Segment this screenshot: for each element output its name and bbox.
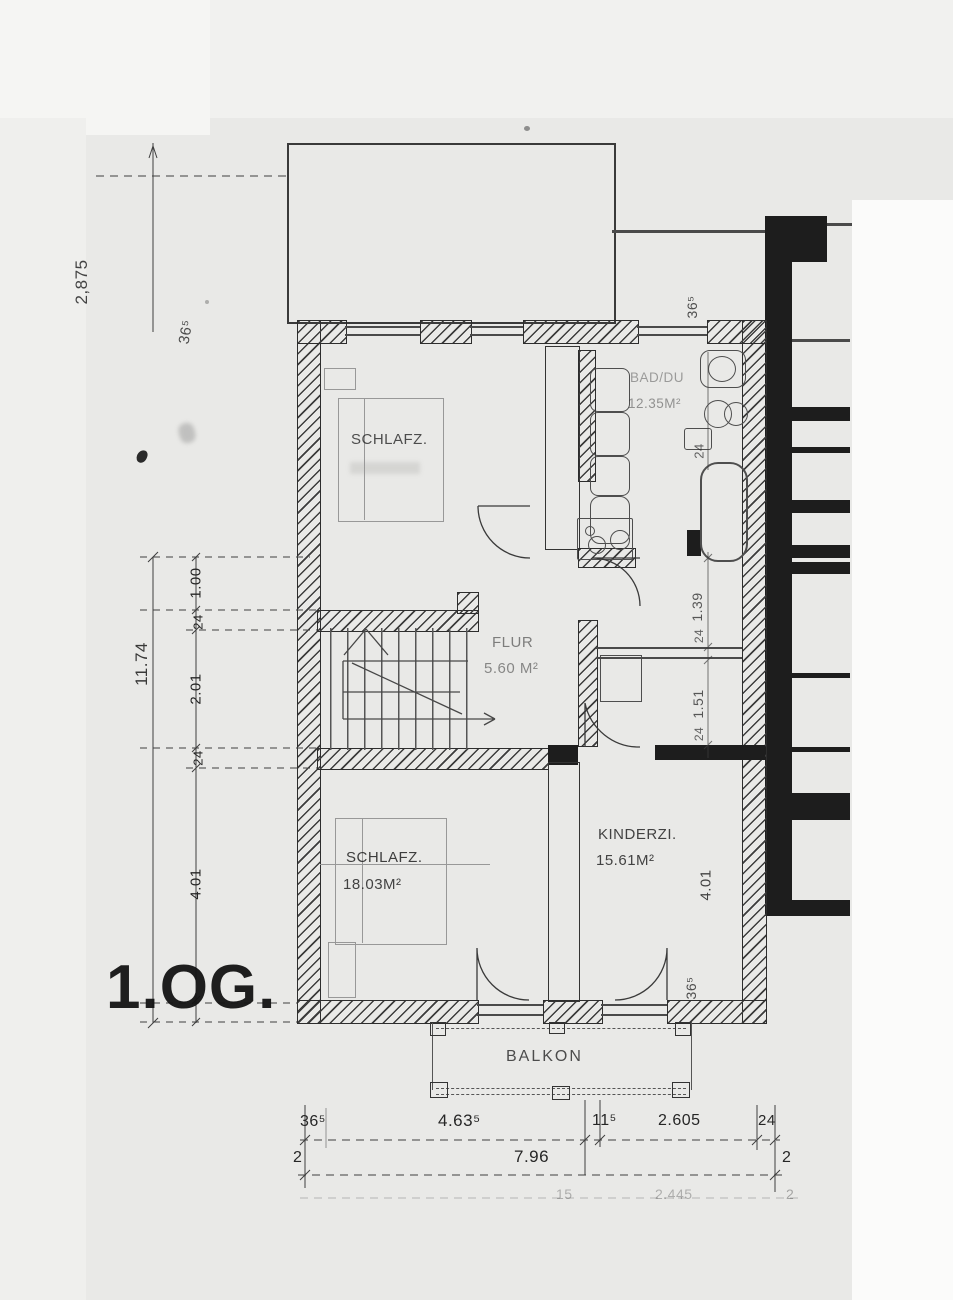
door-arcs — [477, 506, 667, 1000]
dim-right-chain-1: 1.39 — [689, 592, 705, 621]
dim-left-chain-1: 24 — [191, 614, 206, 629]
dim-bottom-row2-1: 7.96 — [514, 1147, 549, 1167]
room-label-schlafz2: SCHLAFZ. — [346, 849, 423, 866]
ink-speck-2 — [524, 126, 530, 131]
room-label-flur: FLUR — [492, 634, 533, 651]
room-area-schlafz2: 18.03M² — [343, 876, 402, 893]
dim-left-chain-4: 4.01 — [188, 868, 205, 899]
ink-speck-3 — [205, 300, 209, 304]
room-label-balkon: BALKON — [506, 1048, 583, 1066]
dim-bottom-row3-0: 15 — [556, 1186, 573, 1202]
dim-left-chain-2: 2.01 — [188, 673, 205, 704]
door-arc-bad — [592, 558, 640, 606]
room-area-flur: 5.60 M² — [484, 660, 538, 677]
stair-rail — [343, 661, 468, 719]
dim-top-left: 2,875 — [72, 259, 92, 304]
dim-vticks-bottom — [305, 1100, 775, 1192]
dim-bottom-row2-0: 2 — [293, 1149, 302, 1167]
room-label-bad: BAD/DU — [630, 370, 684, 385]
room-area-smudge-schlafz1 — [350, 462, 420, 474]
dim-right-chain-2: 24 — [692, 629, 706, 643]
door-arc-kinderzimmer — [585, 703, 640, 747]
floor-title: 1.OG. — [106, 952, 276, 1023]
dim-bottom-row2-2: 2 — [782, 1149, 791, 1167]
dim-right-chain-0: 24 — [692, 443, 707, 458]
door-arc-balcony-1 — [477, 948, 529, 1000]
dim-bottom-row3-2: 2 — [786, 1186, 794, 1202]
dim-left-chain-3: 24 — [191, 750, 206, 765]
dim-right-room: 4.01 — [698, 869, 715, 900]
dim-bottom-row3-1: 2.445 — [655, 1186, 693, 1202]
dim-vline-topleft — [149, 143, 157, 332]
room-area-bad: 12.35M² — [628, 396, 681, 411]
floorplan-scan: SCHLAFZ. BAD/DU 12.35M² FLUR 5.60 M² SCH… — [0, 0, 953, 1300]
door-arc-balcony-2 — [615, 948, 667, 1000]
dim-bottom-row1-3: 2.605 — [658, 1112, 701, 1130]
dim-right-chain-3: 1.51 — [690, 689, 706, 718]
dim-bottom-row1-0: 36⁵ — [300, 1113, 326, 1131]
stair-walk-diagonals — [344, 629, 462, 714]
dim-right-top-wall: 36⁵ — [684, 296, 700, 319]
dim-left-total: 11.74 — [132, 642, 152, 686]
room-label-schlafz1: SCHLAFZ. — [351, 431, 428, 448]
dim-bottom-row1-4: 24 — [758, 1112, 776, 1129]
stair-walk-line — [343, 713, 495, 725]
room-area-kinderzimmer: 15.61M² — [596, 852, 655, 869]
dim-right-chain-4: 24 — [692, 727, 706, 741]
room-label-kinderzimmer: KINDERZI. — [598, 826, 677, 843]
dim-right-bottom-wall: 36⁵ — [683, 977, 699, 1000]
stair-linework — [343, 629, 495, 725]
door-arc-schlafz1 — [478, 506, 530, 558]
dim-left-chain-0: 1.00 — [188, 567, 205, 598]
dim-bottom-row1-1: 4.63⁵ — [438, 1111, 481, 1131]
dim-bottom-row1-2: 11⁵ — [592, 1112, 617, 1130]
